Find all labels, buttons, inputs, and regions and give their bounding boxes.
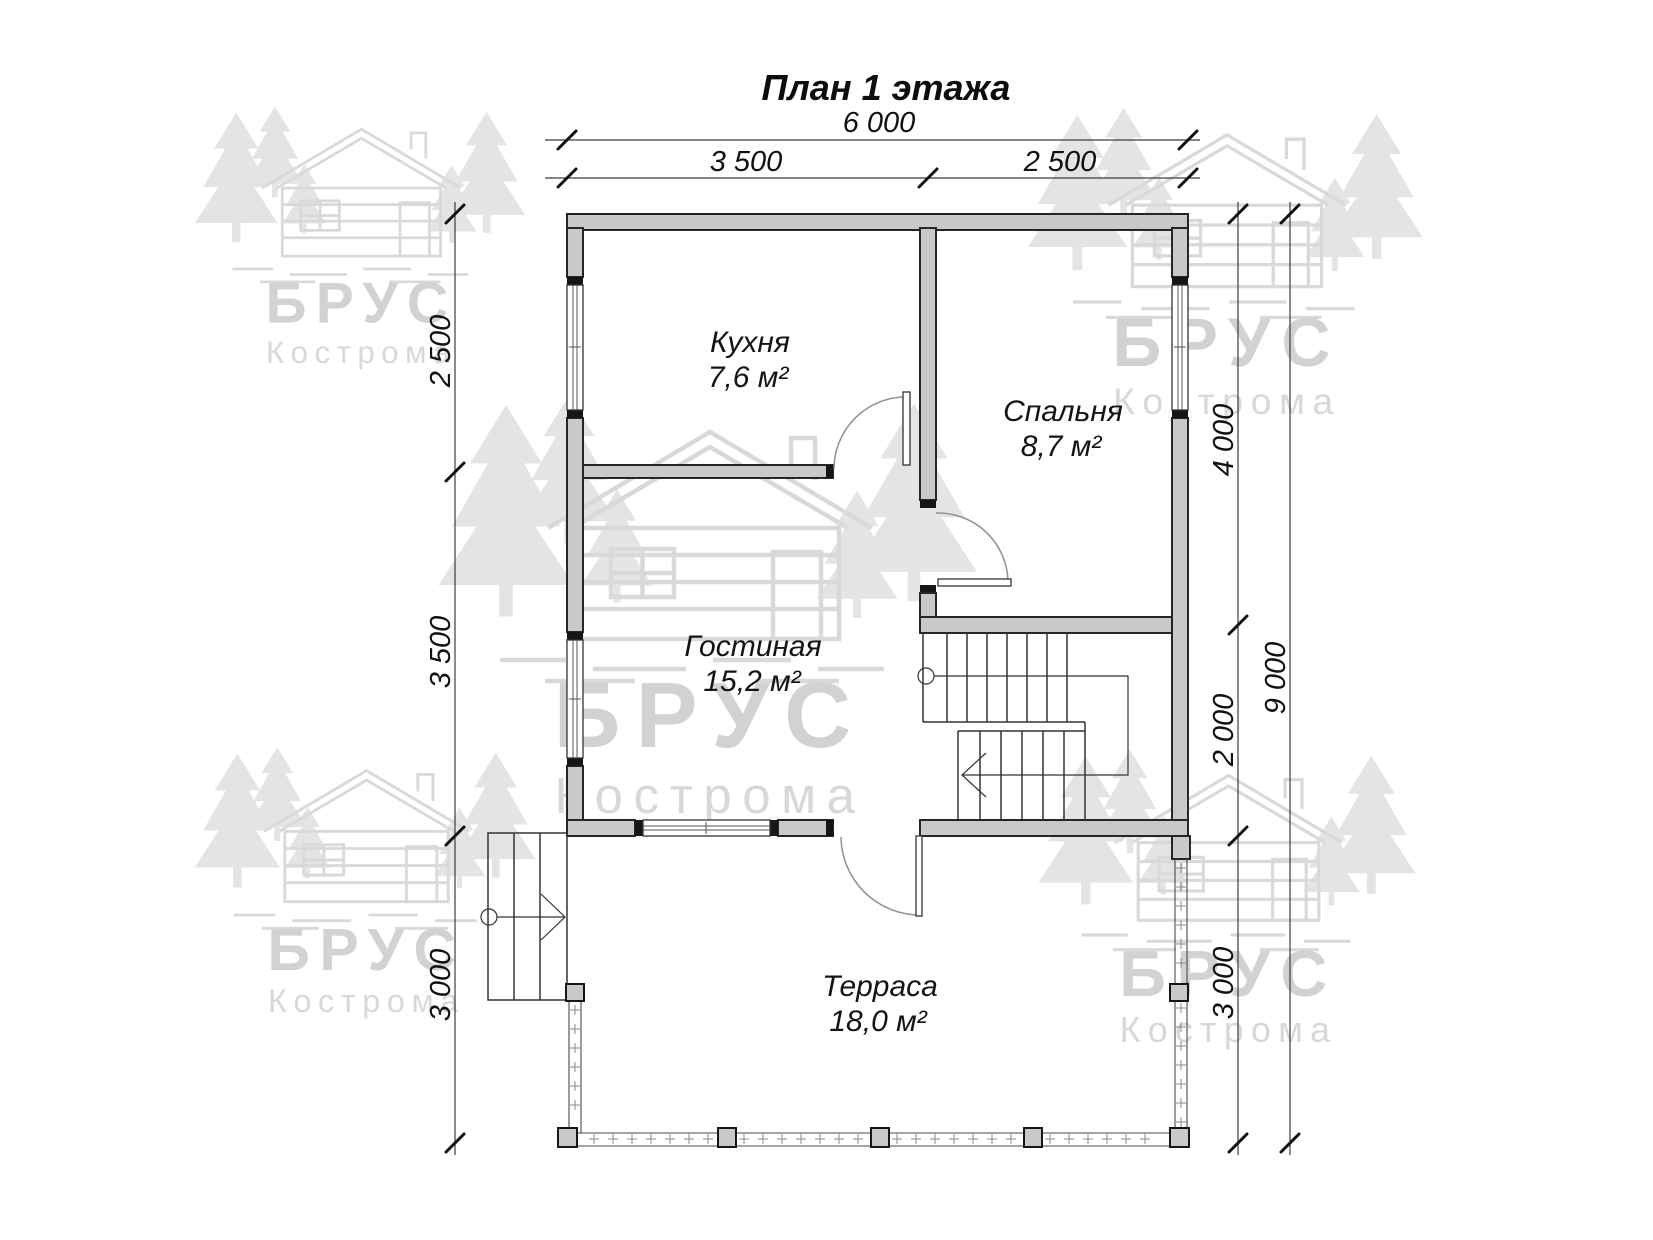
page-title: План 1 этажа — [762, 67, 1011, 108]
wall-segment — [567, 214, 1188, 230]
room-area-bedroom: 8,7 м² — [1021, 430, 1103, 463]
room-name-living: Гостиная — [684, 630, 821, 663]
wall-segment — [1172, 228, 1188, 277]
window-living-south — [643, 820, 770, 836]
wall-segment — [567, 228, 583, 277]
dim-right-overall: 9 000 — [1260, 642, 1292, 715]
room-name-terrace: Терраса — [822, 970, 938, 1003]
wall-cap — [635, 820, 643, 836]
railing-post — [1024, 1128, 1042, 1147]
wall-cap — [1172, 410, 1188, 418]
dim-left-bottom: 3 000 — [425, 949, 457, 1022]
railing-post — [1170, 984, 1188, 1001]
terrace-railings — [558, 859, 1189, 1147]
stair-treads-upper — [947, 633, 1067, 722]
dim-right-top: 4 000 — [1208, 404, 1240, 477]
dim-right-mid: 2 000 — [1208, 694, 1240, 768]
dim-top-right: 2 500 — [1023, 146, 1097, 178]
wall-segment — [920, 820, 1188, 836]
wall-cap — [770, 820, 778, 836]
wall-cap — [567, 277, 583, 285]
wall-segment — [778, 820, 833, 836]
wall-segment — [1172, 836, 1190, 859]
door-terrace — [841, 836, 922, 916]
wall-cap — [826, 465, 833, 478]
room-name-bedroom: Спальня — [1003, 395, 1123, 428]
wall-cap — [567, 632, 583, 640]
wall-cap — [567, 758, 583, 766]
wall-cap — [567, 410, 583, 418]
wall-cap — [826, 820, 833, 836]
room-name-kitchen: Кухня — [710, 326, 790, 359]
dim-top-left: 3 500 — [710, 146, 783, 178]
window-kitchen-west — [567, 285, 583, 410]
wall-segment — [920, 617, 1172, 633]
dim-top-overall: 6 000 — [843, 107, 916, 139]
wall-segment — [920, 228, 936, 500]
railing-post — [1170, 1128, 1189, 1147]
room-area-terrace: 18,0 м² — [829, 1005, 927, 1038]
wall-segment — [567, 418, 583, 632]
dim-left-top: 2 500 — [425, 315, 457, 389]
railing-post — [871, 1128, 889, 1147]
room-area-living: 15,2 м² — [703, 665, 801, 698]
railing-post — [566, 984, 584, 1001]
wall-cap — [1172, 277, 1188, 285]
baluster-marks — [570, 863, 1186, 1144]
dim-right-bottom: 3 000 — [1208, 947, 1240, 1020]
window-living-west — [567, 640, 583, 758]
dim-left-mid: 3 500 — [425, 616, 457, 689]
room-area-kitchen: 7,6 м² — [708, 361, 790, 394]
wall-cap — [920, 585, 936, 593]
floor-plan-page: БРУС Кострома План 1 этажа — [0, 0, 1653, 1240]
wall-segment — [567, 820, 635, 836]
window-bedroom-east — [1172, 285, 1188, 410]
wall-segment — [1172, 418, 1188, 837]
wall-cap — [920, 500, 936, 508]
railing-post — [558, 1128, 577, 1147]
steps-direction-arrow — [481, 894, 565, 940]
wall-segment — [583, 465, 833, 478]
railing-post — [718, 1128, 736, 1147]
